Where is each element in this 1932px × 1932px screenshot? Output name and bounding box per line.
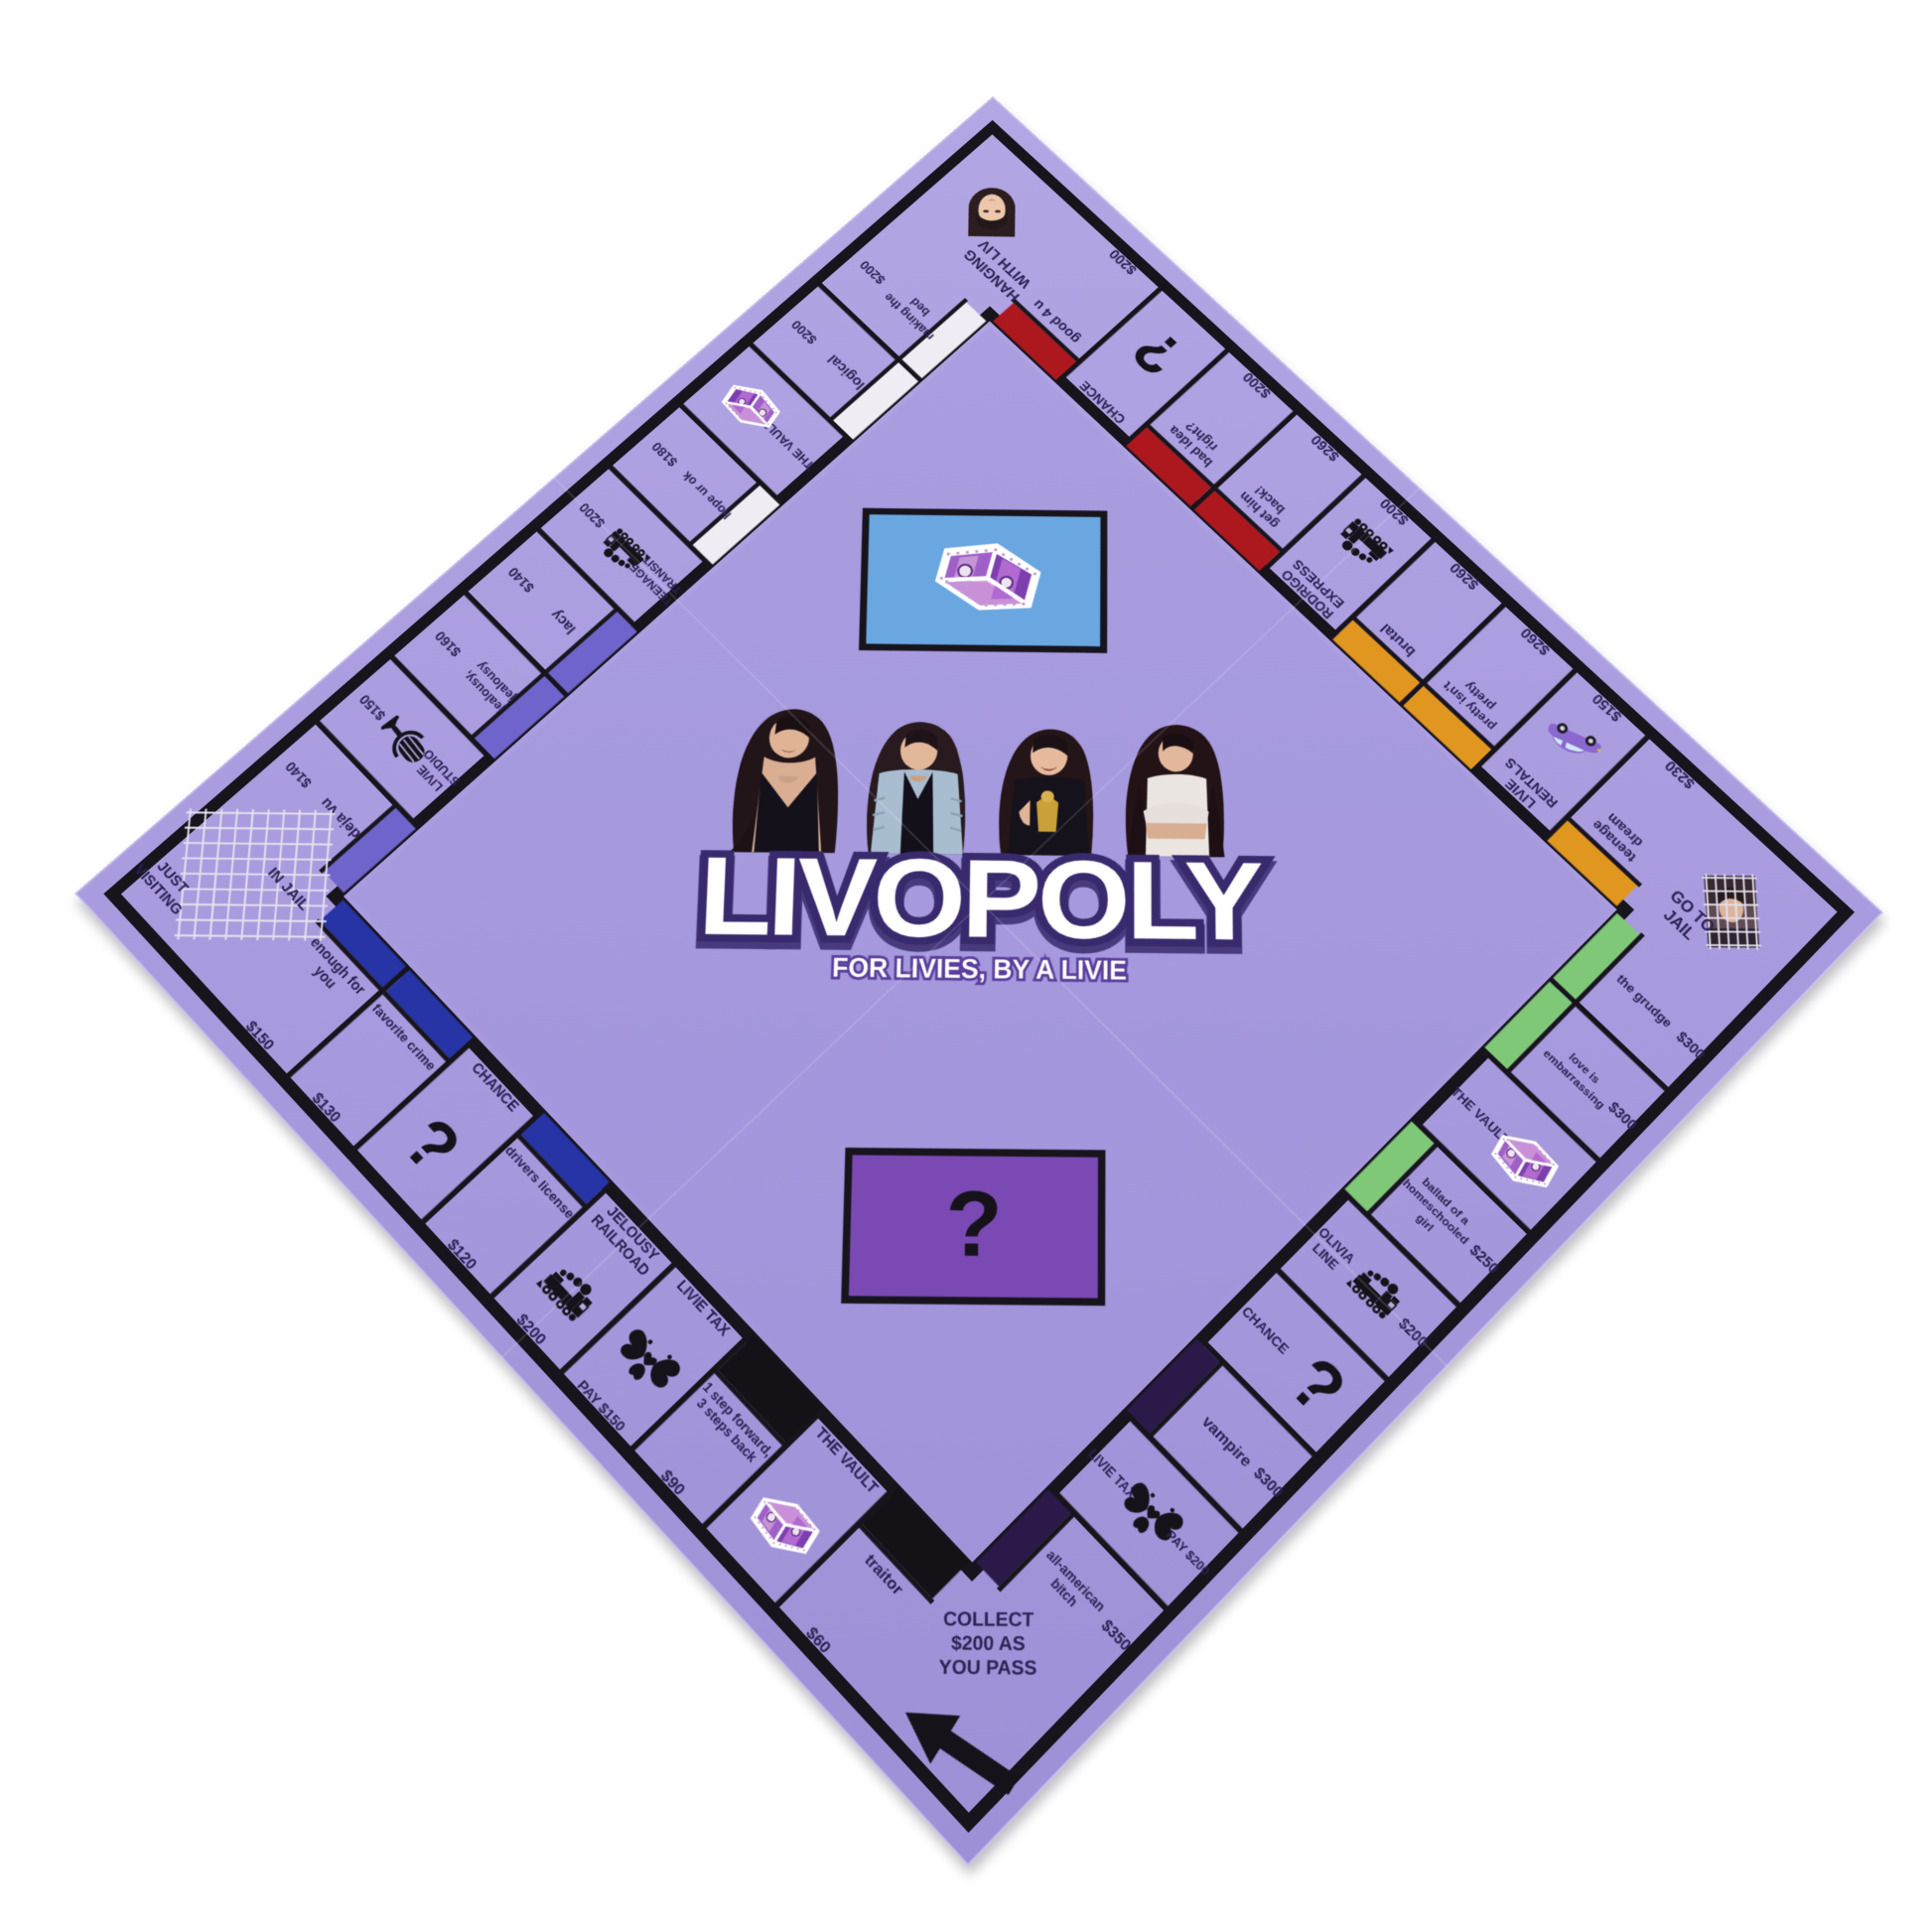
svg-text:?: ? [944, 1172, 1003, 1276]
svg-text:FOR LIVIES, BY A LIVIE: FOR LIVIES, BY A LIVIE [832, 953, 1127, 987]
svg-text:$200 AS: $200 AS [951, 1633, 1026, 1655]
svg-text:YOU PASS: YOU PASS [938, 1657, 1036, 1680]
svg-text:LIVOPOLY: LIVOPOLY [696, 835, 1263, 965]
svg-text:COLLECT: COLLECT [943, 1609, 1035, 1632]
